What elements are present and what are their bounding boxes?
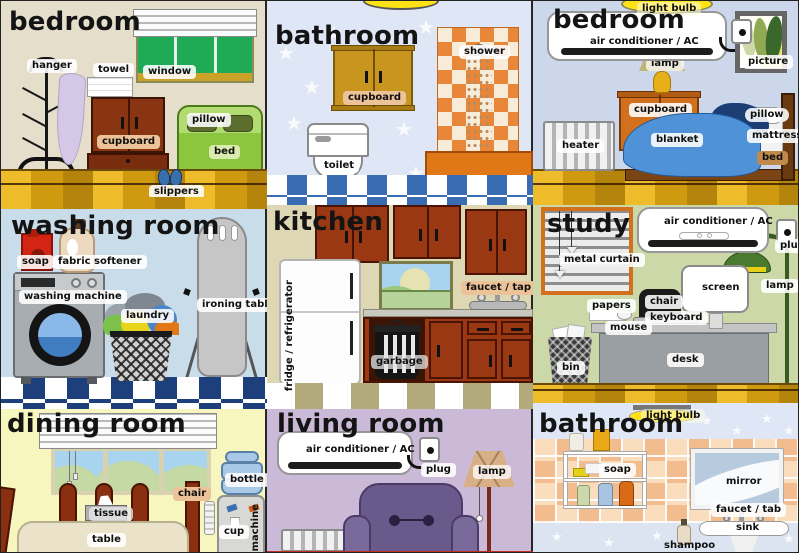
room-living: living room air conditioner / AC plug la…: [267, 403, 533, 553]
drawer: [467, 321, 497, 335]
cabinet-handle: [419, 229, 422, 241]
armchair-arm: [343, 515, 371, 553]
fridge-handle: [350, 273, 353, 299]
label-garbage: garbage: [371, 355, 428, 369]
cabinet-door: [429, 321, 463, 379]
ac-dot: [697, 233, 702, 238]
floor-bleed: [267, 197, 533, 205]
lamp-body: [653, 71, 671, 93]
label-chair: chair: [173, 487, 211, 501]
board-slot: [231, 225, 238, 241]
label-table: table: [87, 533, 126, 547]
cabinet-handle: [435, 229, 438, 241]
label-lamp: lamp: [761, 279, 799, 293]
washing-machine: [13, 272, 105, 378]
cabinet-handle: [509, 355, 512, 367]
label-slippers: slippers: [149, 185, 204, 197]
garbage-can: [375, 325, 419, 379]
floor-bleed: [533, 197, 799, 205]
label-machine: machine: [249, 499, 263, 553]
ac-vent: [679, 232, 729, 240]
blind-cord: [69, 451, 70, 481]
upper-cabinet: [393, 205, 461, 259]
armchair-button: [389, 515, 400, 526]
star-icon: [285, 113, 303, 133]
basket-rim: [107, 331, 175, 337]
bottle-handle-hole: [67, 239, 78, 256]
label-cupboard: cupboard: [343, 91, 406, 105]
room-title: dining room: [7, 411, 186, 437]
room-title: study: [547, 211, 630, 237]
star-icon: [395, 119, 413, 139]
armchair-back: [359, 483, 463, 553]
shelf-board: [563, 451, 647, 455]
label-bed: bed: [757, 151, 788, 165]
board-slot: [219, 225, 226, 241]
toilet-tank: [307, 123, 369, 157]
field-shape: [382, 290, 450, 308]
machine-display: [21, 278, 55, 287]
label-cupboard: cupboard: [97, 135, 160, 149]
room-study: study metal curtain air conditioner / AC…: [533, 197, 799, 403]
label-hanger: hanger: [27, 59, 77, 73]
towel-stack: [87, 77, 133, 97]
room-bedroom-1: bedroom window hanger towel: [1, 1, 267, 197]
star-icon: [731, 425, 743, 438]
label-towel: towel: [93, 63, 134, 77]
machine-foot: [87, 377, 97, 384]
air-conditioner: [637, 207, 769, 253]
window-mullion: [159, 451, 164, 495]
armchair-arm: [451, 515, 479, 553]
star-icon: [761, 413, 773, 426]
cabinet-door: [501, 339, 531, 379]
cabinet-doorline: [496, 211, 498, 273]
room-title: bathroom: [539, 411, 683, 437]
brick-floor: [1, 169, 267, 197]
toilet-lid-line: [309, 133, 367, 135]
star-icon: [551, 531, 563, 544]
garbage-lid: [373, 325, 421, 332]
label-heater: heater: [557, 139, 604, 153]
leg-foot: [252, 288, 260, 296]
room-bedroom-2: light bulb bedroom air conditioner / AC …: [533, 1, 799, 197]
label-faucet: faucet / tab: [711, 503, 786, 517]
drawer-handle: [511, 328, 523, 331]
upper-cabinet: [465, 209, 527, 275]
shower-spray: [466, 58, 492, 158]
cabinet-doorline: [427, 207, 429, 257]
star-icon: [783, 425, 795, 438]
label-sink: sink: [731, 521, 764, 535]
label-cup: cup: [219, 525, 249, 539]
checker-floor: [267, 175, 533, 197]
label-papers: papers: [587, 299, 636, 313]
label-chair: chair: [645, 295, 683, 309]
label-mattress: mattress: [747, 129, 799, 143]
drawer-handle: [477, 328, 489, 331]
drawer: [501, 321, 531, 335]
ac-vent-slot: [288, 462, 402, 469]
label-bottle: bottle: [225, 473, 267, 487]
label-bin: bin: [557, 361, 585, 375]
label-shampoo: shampoo: [659, 539, 720, 553]
label-laundry: laundry: [121, 309, 174, 323]
room-title: bathroom: [275, 23, 419, 49]
cupboard-handle: [121, 117, 124, 129]
ceiling-light: [363, 1, 439, 10]
room-title: washing room: [11, 213, 220, 239]
shelf-board: [563, 478, 647, 482]
hanger-branch: [22, 113, 46, 127]
ac-vent-slot: [648, 240, 758, 247]
fridge-handle: [350, 321, 353, 355]
cupboard-handle: [365, 71, 368, 83]
star-icon: [603, 537, 615, 550]
room-dining: dining room bottle machine cup: [1, 403, 267, 553]
label-washing-machine: washing machine: [19, 290, 127, 304]
bottle-shape: [598, 483, 613, 506]
star-icon: [417, 17, 435, 37]
room-bathroom-2: light bulb bathroom soap mirror: [533, 403, 799, 553]
ironing-board: [197, 217, 247, 377]
cabinet-handle: [437, 345, 440, 357]
sink-basin: [469, 301, 527, 310]
socket-hole: [427, 447, 434, 454]
armchair-button: [423, 515, 434, 526]
armchair-seam: [400, 519, 424, 521]
label-ac: air conditioner / AC: [585, 35, 704, 49]
machine-door: [29, 304, 91, 366]
floor-bleed: [1, 197, 267, 209]
machine-knob: [71, 278, 81, 288]
label-toilet: toilet: [319, 159, 359, 173]
chair-post: [131, 483, 149, 523]
hanger-branch: [22, 137, 46, 151]
room-kitchen: kitchen fridge / refrigerator: [267, 197, 533, 403]
towel-on-hanger: [55, 72, 87, 165]
room-washing: washing room soap fabric softener washin…: [1, 197, 267, 403]
bottle-shape: [619, 481, 634, 506]
label-ac: air conditioner / AC: [301, 443, 420, 457]
room-title: bedroom: [9, 9, 141, 35]
machine-foot: [21, 377, 31, 384]
label-pillow: pillow: [745, 108, 789, 122]
star-icon: [783, 533, 795, 546]
ac-vent-slot: [561, 48, 712, 55]
room-title: kitchen: [273, 209, 383, 235]
room-bathroom-1: bathroom cupboard toilet shower: [267, 1, 533, 197]
label-pillow: pillow: [187, 113, 231, 127]
cabinet-door: [467, 339, 497, 379]
cupboard-handle: [135, 117, 138, 129]
cup-stack: [204, 501, 215, 535]
label-picture: picture: [743, 55, 793, 69]
laundry-basket: [107, 331, 175, 381]
leg-foot: [183, 288, 191, 296]
cabinet-handle: [489, 355, 492, 367]
cold-tap: [226, 504, 237, 513]
cupboard-handle: [379, 71, 382, 83]
label-lamp: lamp: [473, 465, 511, 479]
checker-floor: [267, 383, 533, 403]
rooms-poster: bedroom window hanger towel: [0, 0, 799, 553]
label-metal-curtain: metal curtain: [559, 253, 645, 267]
label-window: window: [143, 65, 196, 79]
label-faucet: faucet / tap: [461, 281, 533, 295]
label-ac: air conditioner / AC: [659, 215, 778, 229]
label-mirror: mirror: [721, 475, 767, 489]
label-blanket: blanket: [651, 133, 703, 147]
label-screen: screen: [697, 281, 745, 295]
label-desk: desk: [667, 353, 704, 367]
star-icon: [303, 77, 321, 97]
machine-door-glass: [38, 313, 82, 357]
label-fridge: fridge / refrigerator: [283, 275, 297, 396]
label-keyboard: keyboard: [645, 311, 708, 325]
label-soap: soap: [17, 255, 54, 269]
cabinet-handle: [489, 239, 492, 251]
label-soap: soap: [599, 463, 636, 477]
label-plug: plug: [775, 239, 799, 253]
cord-arrow: [555, 271, 565, 283]
chair-illustration: [1, 486, 16, 553]
lamp-pole: [487, 487, 491, 553]
cabinet-handle: [503, 239, 506, 251]
socket-hole: [739, 29, 746, 36]
cord-handle: [73, 473, 78, 480]
room-title: bedroom: [553, 7, 685, 33]
label-fabric-softener: fabric softener: [53, 255, 147, 269]
bottle-shape: [577, 485, 590, 506]
label-ironing-table: ironing table: [197, 298, 267, 312]
label-bed: bed: [209, 145, 240, 159]
label-tissue: tissue: [89, 507, 133, 521]
drawer-knob: [126, 159, 130, 163]
shelf-illustration: [563, 451, 647, 509]
toilet-flush-lever: [315, 136, 331, 142]
blind-cord: [75, 451, 76, 473]
label-mouse: mouse: [605, 321, 652, 335]
chair-post: [59, 483, 77, 523]
garbage-handle: [391, 320, 403, 325]
room-title: living room: [277, 411, 445, 437]
countertop: [363, 309, 533, 317]
hanger-branch: [22, 87, 46, 101]
machine-knob: [87, 278, 97, 288]
blinds-illustration: [133, 9, 257, 37]
label-plug: plug: [421, 463, 456, 477]
label-shower: shower: [459, 45, 510, 59]
socket-hole: [784, 229, 791, 236]
screen-stand: [709, 313, 723, 329]
kitchen-window: [379, 261, 453, 311]
lamp-pole: [785, 241, 789, 397]
brick-floor: [533, 383, 799, 403]
lamp-pull-cord: [479, 487, 480, 515]
ac-dot: [707, 233, 712, 238]
